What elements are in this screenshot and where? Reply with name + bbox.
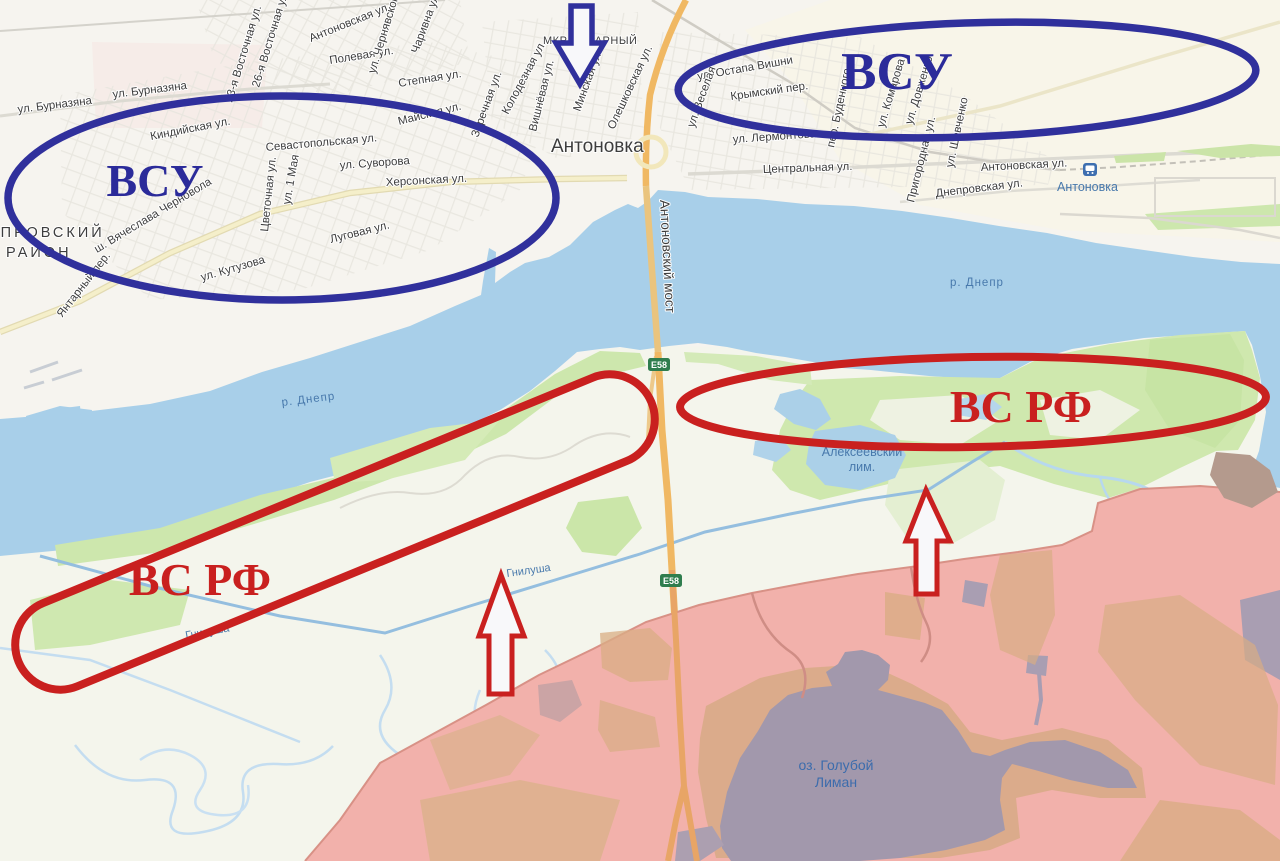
svg-text:Антоновка: Антоновка <box>551 136 644 157</box>
svg-text:оз. Голубой: оз. Голубой <box>799 757 874 773</box>
svg-text:ВС РФ: ВС РФ <box>129 554 271 605</box>
svg-text:Антоновка: Антоновка <box>1057 180 1118 194</box>
svg-text:E58: E58 <box>651 360 667 370</box>
svg-text:р. Днепр: р. Днепр <box>950 277 1004 289</box>
svg-text:лим.: лим. <box>849 460 875 474</box>
svg-text:Лиман: Лиман <box>815 774 857 790</box>
svg-text:E58: E58 <box>663 576 679 586</box>
svg-text:ВСУ: ВСУ <box>106 155 203 206</box>
svg-text:ВС РФ: ВС РФ <box>950 381 1092 432</box>
svg-text:ВСУ: ВСУ <box>841 43 953 101</box>
